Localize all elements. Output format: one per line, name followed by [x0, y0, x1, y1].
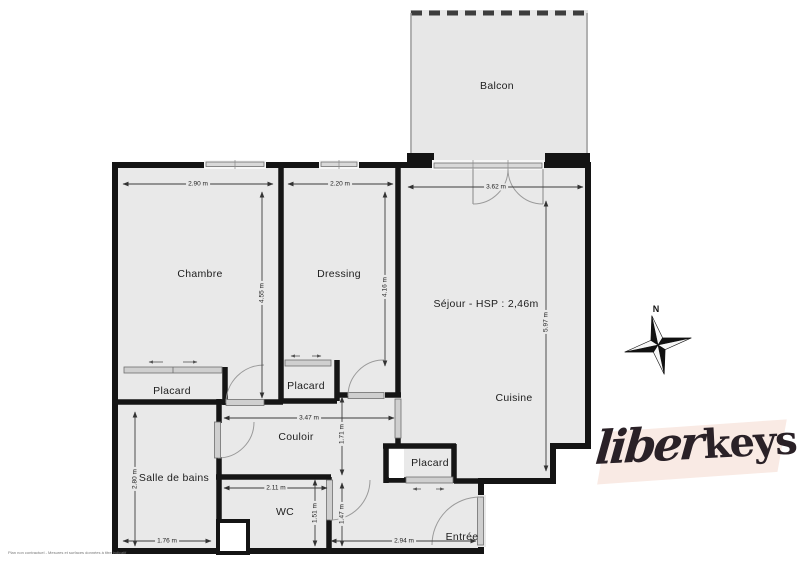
compass-north-label: N	[653, 304, 660, 314]
logo-bold-text: keys	[702, 416, 797, 468]
disclaimer-text: Plan non contractuel - Mesures et surfac…	[8, 550, 126, 555]
dim-entree-width: 2.94 m	[392, 537, 416, 544]
door-dressing	[348, 393, 384, 399]
window-dressing	[319, 160, 359, 169]
dim-dressing-depth: 4.16 m	[381, 275, 388, 299]
liberkeys-logo: liber keys	[590, 415, 789, 491]
dim-wc-depth: 1.51 m	[311, 501, 318, 525]
room-label-placard-entree: Placard	[411, 457, 449, 469]
dim-couloir-width: 1.71 m	[338, 422, 345, 446]
logo-script-text: liber	[593, 415, 703, 475]
duct-niche-placard	[389, 449, 404, 478]
window-chambre	[204, 160, 266, 169]
floor-plan-page: Balcon Chambre Dressing Séjour - HSP : 2…	[0, 0, 800, 566]
room-label-cuisine: Cuisine	[495, 392, 532, 404]
dim-entree-depth: 1.47 m	[338, 502, 345, 526]
room-label-couloir: Couloir	[278, 431, 313, 443]
balcony-wall-stub-left	[407, 153, 434, 166]
dim-wc-width: 2.11 m	[264, 484, 287, 491]
dim-sejour-depth: 5.97 m	[542, 310, 549, 334]
door-wc	[327, 480, 333, 520]
room-label-chambre: Chambre	[177, 268, 222, 280]
room-label-placard-dressing: Placard	[287, 380, 325, 392]
door-salle-de-bains	[215, 422, 221, 458]
door-chambre	[226, 400, 264, 406]
room-label-sejour: Séjour - HSP : 2,46m	[433, 298, 538, 310]
room-label-wc: WC	[276, 506, 294, 518]
compass-rose	[619, 309, 698, 382]
room-label-placard-chambre: Placard	[153, 385, 191, 397]
logo-wordmark: liber keys	[594, 410, 797, 474]
dim-chambre-depth: 4.55 m	[258, 281, 265, 305]
door-couloir-sejour	[395, 399, 401, 438]
room-label-dressing: Dressing	[317, 268, 361, 280]
duct-niche-wc	[218, 521, 248, 553]
dim-sdb-depth: 2.80 m	[131, 467, 138, 491]
window-sejour-french-door	[432, 160, 544, 170]
room-label-salle-de-bains: Salle de bains	[139, 472, 209, 484]
apartment-outline	[115, 153, 590, 551]
dim-dressing-width: 2.20 m	[328, 180, 352, 187]
door-entree	[478, 497, 484, 545]
dim-sejour-width: 3.62 m	[484, 183, 508, 190]
dim-couloir-length: 3.47 m	[297, 414, 321, 421]
dim-chambre-width: 2.90 m	[186, 180, 210, 187]
dim-sdb-width: 1.76 m	[155, 537, 179, 544]
room-label-balcon: Balcon	[480, 80, 514, 92]
room-label-entree: Entrée	[446, 531, 479, 543]
balcony-wall-stub-right	[545, 153, 590, 167]
